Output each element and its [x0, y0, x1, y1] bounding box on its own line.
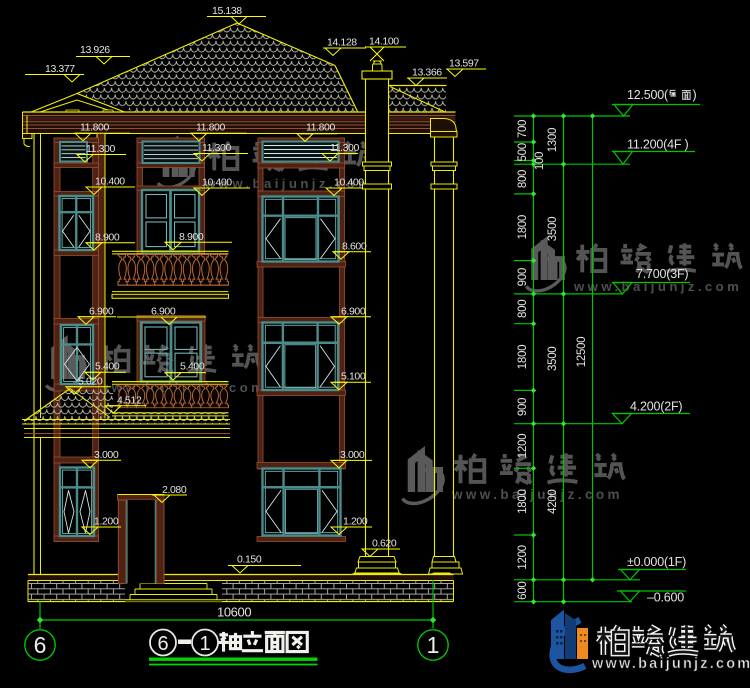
svg-text:1800: 1800	[517, 345, 529, 369]
svg-text:12.500(: 12.500(	[627, 88, 669, 102]
svg-text:13.366: 13.366	[412, 67, 442, 79]
svg-text:11.300: 11.300	[86, 143, 115, 155]
svg-text:www.baijunjz.com: www.baijunjz.com	[591, 656, 750, 672]
svg-text:5.400: 5.400	[95, 361, 120, 373]
svg-text:5.020: 5.020	[78, 376, 103, 388]
svg-text:5.100: 5.100	[341, 371, 366, 383]
svg-text:10600: 10600	[217, 605, 251, 620]
svg-text:7.700(3F): 7.700(3F)	[636, 267, 688, 281]
svg-text:6: 6	[34, 632, 47, 658]
svg-text:5.400: 5.400	[180, 361, 205, 373]
svg-text:1200: 1200	[517, 545, 529, 569]
svg-text:800: 800	[517, 170, 529, 188]
svg-text:13.597: 13.597	[449, 58, 479, 70]
svg-text:8.600: 8.600	[342, 241, 367, 253]
svg-text:4200: 4200	[547, 490, 559, 514]
svg-text:4.512: 4.512	[117, 395, 142, 407]
svg-text:11.800: 11.800	[196, 122, 225, 134]
svg-text:500: 500	[517, 143, 529, 161]
svg-text:11.800: 11.800	[306, 122, 335, 134]
svg-text:600: 600	[517, 582, 529, 600]
svg-text:6.900: 6.900	[341, 306, 366, 318]
svg-text:900: 900	[517, 398, 529, 416]
svg-text:±0.000(1F): ±0.000(1F)	[627, 555, 686, 569]
svg-text:3.000: 3.000	[340, 449, 365, 461]
svg-text:11.200(4F ): 11.200(4F )	[627, 138, 689, 152]
svg-text:14.100: 14.100	[369, 36, 399, 48]
svg-text:8.900: 8.900	[95, 232, 120, 244]
svg-text:1800: 1800	[517, 215, 529, 239]
svg-text:1.200: 1.200	[94, 516, 119, 528]
svg-text:13.377: 13.377	[45, 63, 75, 75]
svg-text:900: 900	[517, 268, 529, 286]
svg-text:3.000: 3.000	[94, 449, 119, 461]
svg-text:3500: 3500	[547, 217, 559, 241]
svg-text:100: 100	[534, 152, 546, 170]
svg-text:0.620: 0.620	[372, 538, 397, 550]
svg-text:8.900: 8.900	[179, 231, 204, 243]
svg-text:1200: 1200	[517, 434, 529, 458]
svg-text:10.400: 10.400	[202, 177, 232, 189]
svg-text:800: 800	[517, 300, 529, 318]
svg-text:1.200: 1.200	[343, 516, 368, 528]
svg-text:11.300: 11.300	[202, 142, 231, 154]
svg-text:4.200(2F): 4.200(2F)	[630, 400, 682, 414]
svg-text:1: 1	[199, 633, 210, 655]
svg-text:10.400: 10.400	[334, 177, 364, 189]
svg-text:www.baijunjz.com: www.baijunjz.com	[451, 487, 623, 502]
svg-text:1: 1	[427, 632, 440, 658]
svg-text:15.138: 15.138	[212, 5, 242, 17]
svg-text:6: 6	[157, 633, 168, 655]
svg-text:11.800: 11.800	[80, 122, 109, 134]
svg-text:6.900: 6.900	[151, 306, 176, 318]
svg-text:): )	[693, 88, 697, 102]
svg-text:6.900: 6.900	[89, 306, 114, 318]
svg-text:14.128: 14.128	[327, 37, 357, 49]
svg-text:3500: 3500	[547, 347, 559, 371]
svg-text:1800: 1800	[517, 489, 529, 513]
svg-text:13.926: 13.926	[80, 44, 110, 56]
svg-text:10.400: 10.400	[95, 176, 125, 188]
svg-text:–0.600: –0.600	[647, 591, 684, 605]
svg-text:700: 700	[517, 120, 529, 138]
svg-text:www.baijunjz.com: www.baijunjz.com	[573, 279, 742, 294]
svg-text:1300: 1300	[547, 128, 559, 152]
svg-text:0.150: 0.150	[237, 554, 262, 566]
svg-text:11.300: 11.300	[330, 142, 359, 154]
svg-text:12500: 12500	[576, 337, 588, 367]
svg-text:2.080: 2.080	[162, 484, 187, 496]
